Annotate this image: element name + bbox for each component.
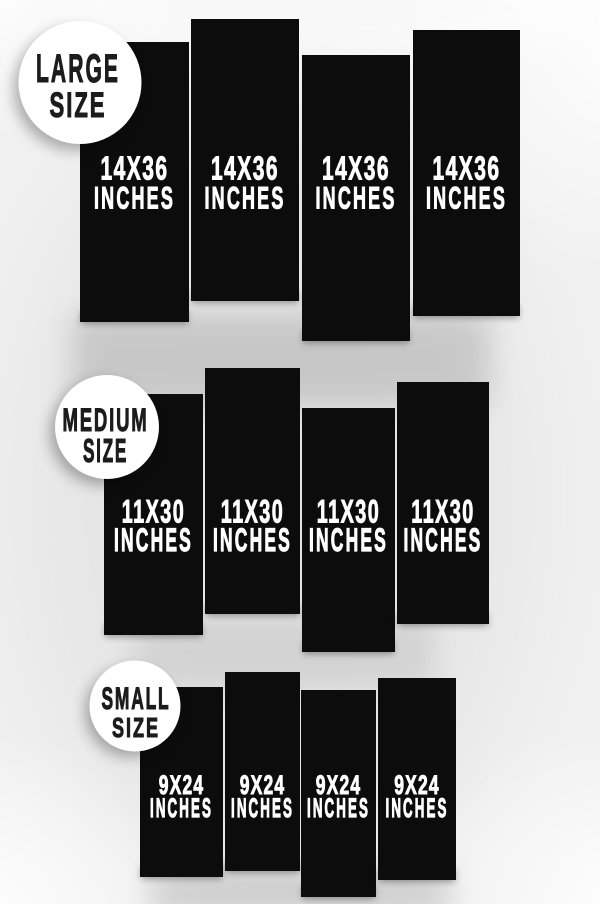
svg-text:INCHES: INCHES xyxy=(205,181,286,216)
svg-text:INCHES: INCHES xyxy=(231,793,294,823)
svg-text:INCHES: INCHES xyxy=(94,181,175,216)
svg-text:SIZE: SIZE xyxy=(83,433,128,470)
svg-text:INCHES: INCHES xyxy=(307,793,370,823)
svg-text:INCHES: INCHES xyxy=(316,181,397,216)
svg-text:SIZE: SIZE xyxy=(112,713,160,744)
svg-text:SIZE: SIZE xyxy=(50,85,107,125)
svg-text:SMALL: SMALL xyxy=(102,681,171,716)
svg-text:INCHES: INCHES xyxy=(404,523,483,559)
svg-text:INCHES: INCHES xyxy=(386,793,449,823)
svg-text:INCHES: INCHES xyxy=(309,523,388,559)
svg-text:INCHES: INCHES xyxy=(114,523,193,559)
svg-text:INCHES: INCHES xyxy=(150,793,213,823)
svg-text:INCHES: INCHES xyxy=(426,181,507,216)
svg-text:INCHES: INCHES xyxy=(213,523,292,559)
